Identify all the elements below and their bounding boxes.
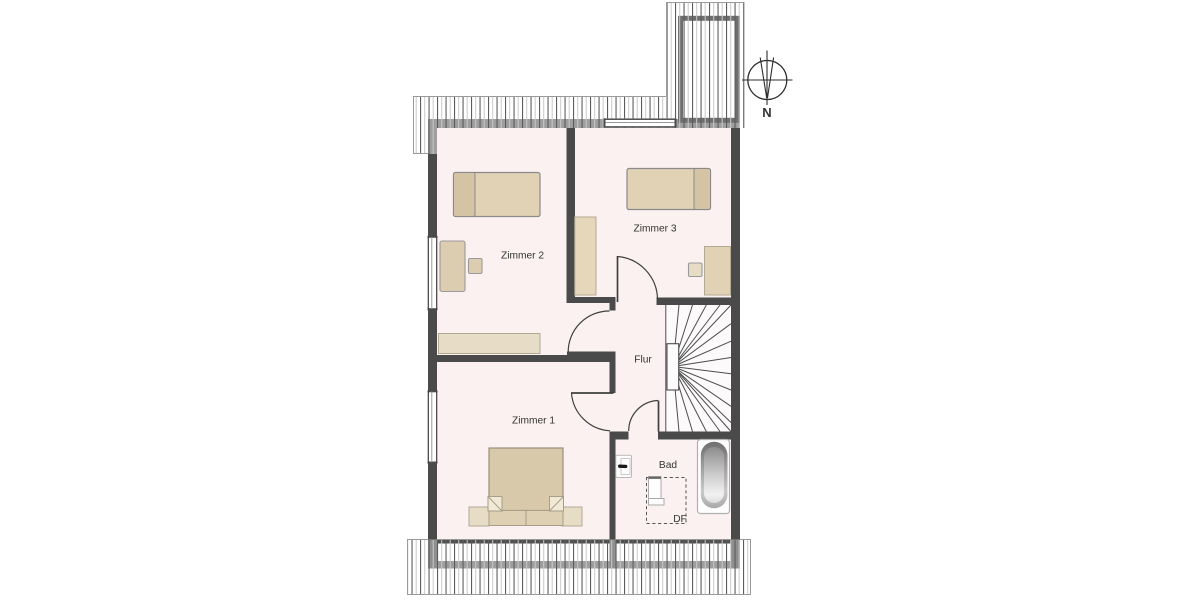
svg-text:Flur: Flur — [634, 354, 652, 365]
svg-text:Zimmer 1: Zimmer 1 — [512, 416, 555, 427]
svg-text:N: N — [762, 105, 771, 120]
svg-text:Zimmer 2: Zimmer 2 — [501, 251, 544, 262]
svg-text:Zimmer 3: Zimmer 3 — [633, 224, 676, 235]
svg-text:DF: DF — [673, 514, 687, 525]
svg-text:Bad: Bad — [659, 460, 677, 471]
